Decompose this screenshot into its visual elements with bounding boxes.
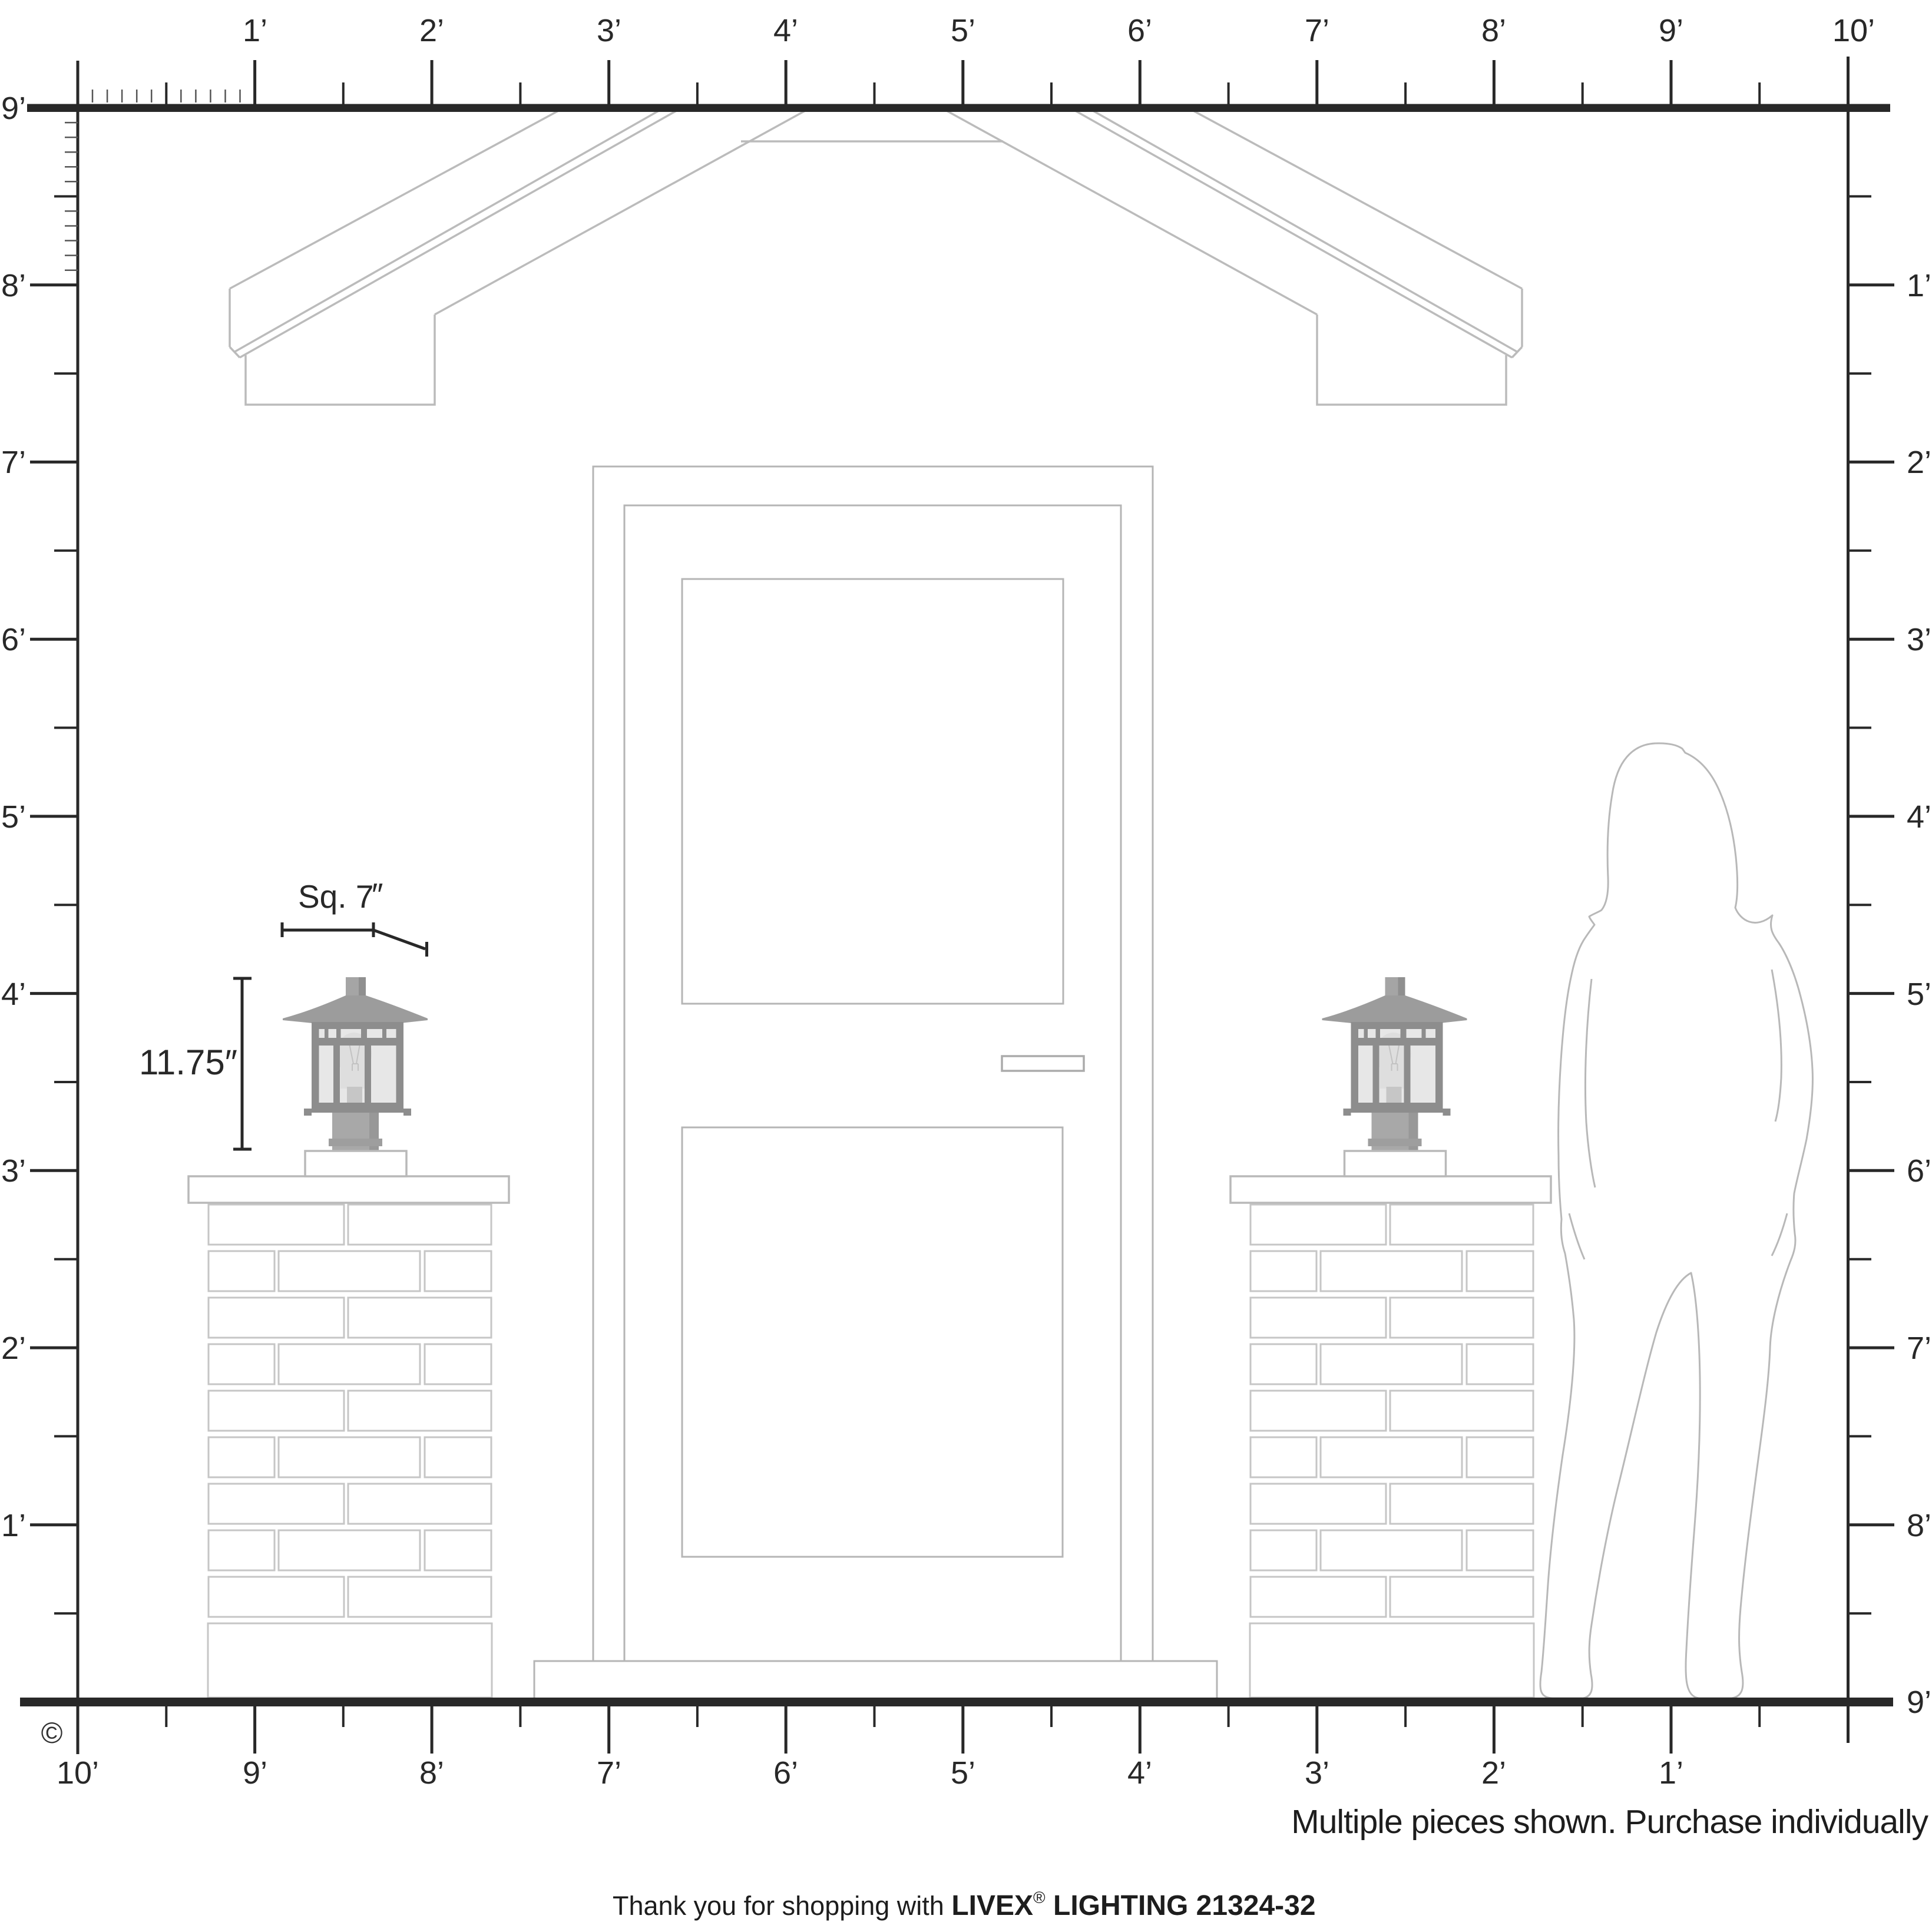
svg-text:11.75″: 11.75″ [139,1043,237,1082]
svg-text:3’: 3’ [1305,1755,1329,1791]
svg-text:10’: 10’ [1832,13,1875,48]
svg-text:8’: 8’ [1,268,26,303]
svg-text:7’: 7’ [1,445,26,480]
svg-text:4’: 4’ [1127,1755,1152,1791]
svg-text:″: ″ [372,876,383,913]
svg-text:2’: 2’ [1,1331,26,1366]
svg-text:2’: 2’ [1481,1755,1506,1791]
svg-text:7’: 7’ [597,1755,621,1791]
svg-text:9’: 9’ [1659,13,1683,48]
svg-text:3’: 3’ [1907,622,1931,657]
svg-text:9’: 9’ [243,1755,267,1791]
svg-text:1’: 1’ [1659,1755,1683,1791]
svg-text:6’: 6’ [1127,13,1152,48]
svg-text:5’: 5’ [951,13,975,48]
svg-text:2’: 2’ [1907,445,1931,480]
svg-text:4’: 4’ [773,13,798,48]
svg-text:6’: 6’ [773,1755,798,1791]
svg-text:5’: 5’ [1907,977,1931,1012]
svg-text:5’: 5’ [951,1755,975,1791]
svg-text:©: © [41,1716,63,1749]
svg-text:8’: 8’ [419,1755,444,1791]
svg-text:7’: 7’ [1305,13,1329,48]
svg-text:4’: 4’ [1907,799,1931,835]
svg-text:1’: 1’ [1907,268,1931,303]
svg-text:6’: 6’ [1,622,26,657]
svg-text:3’: 3’ [1,1153,26,1189]
svg-text:1’: 1’ [243,13,267,48]
svg-text:9’: 9’ [1907,1685,1931,1720]
svg-text:Sq. 7: Sq. 7 [298,878,373,915]
svg-text:7’: 7’ [1907,1331,1931,1366]
svg-text:9’: 9’ [1,91,26,126]
svg-text:5’: 5’ [1,799,26,835]
svg-text:8’: 8’ [1907,1508,1931,1543]
svg-text:6’: 6’ [1907,1153,1931,1189]
svg-text:10’: 10’ [57,1755,99,1791]
svg-text:4’: 4’ [1,977,26,1012]
svg-text:Thank you for shopping with LI: Thank you for shopping with LIVEX® LIGHT… [613,1888,1316,1921]
svg-text:8’: 8’ [1481,13,1506,48]
svg-text:1’: 1’ [1,1508,26,1543]
svg-text:2’: 2’ [419,13,444,48]
svg-text:3’: 3’ [597,13,621,48]
svg-text:Multiple pieces shown. Purchas: Multiple pieces shown. Purchase individu… [1291,1803,1928,1841]
